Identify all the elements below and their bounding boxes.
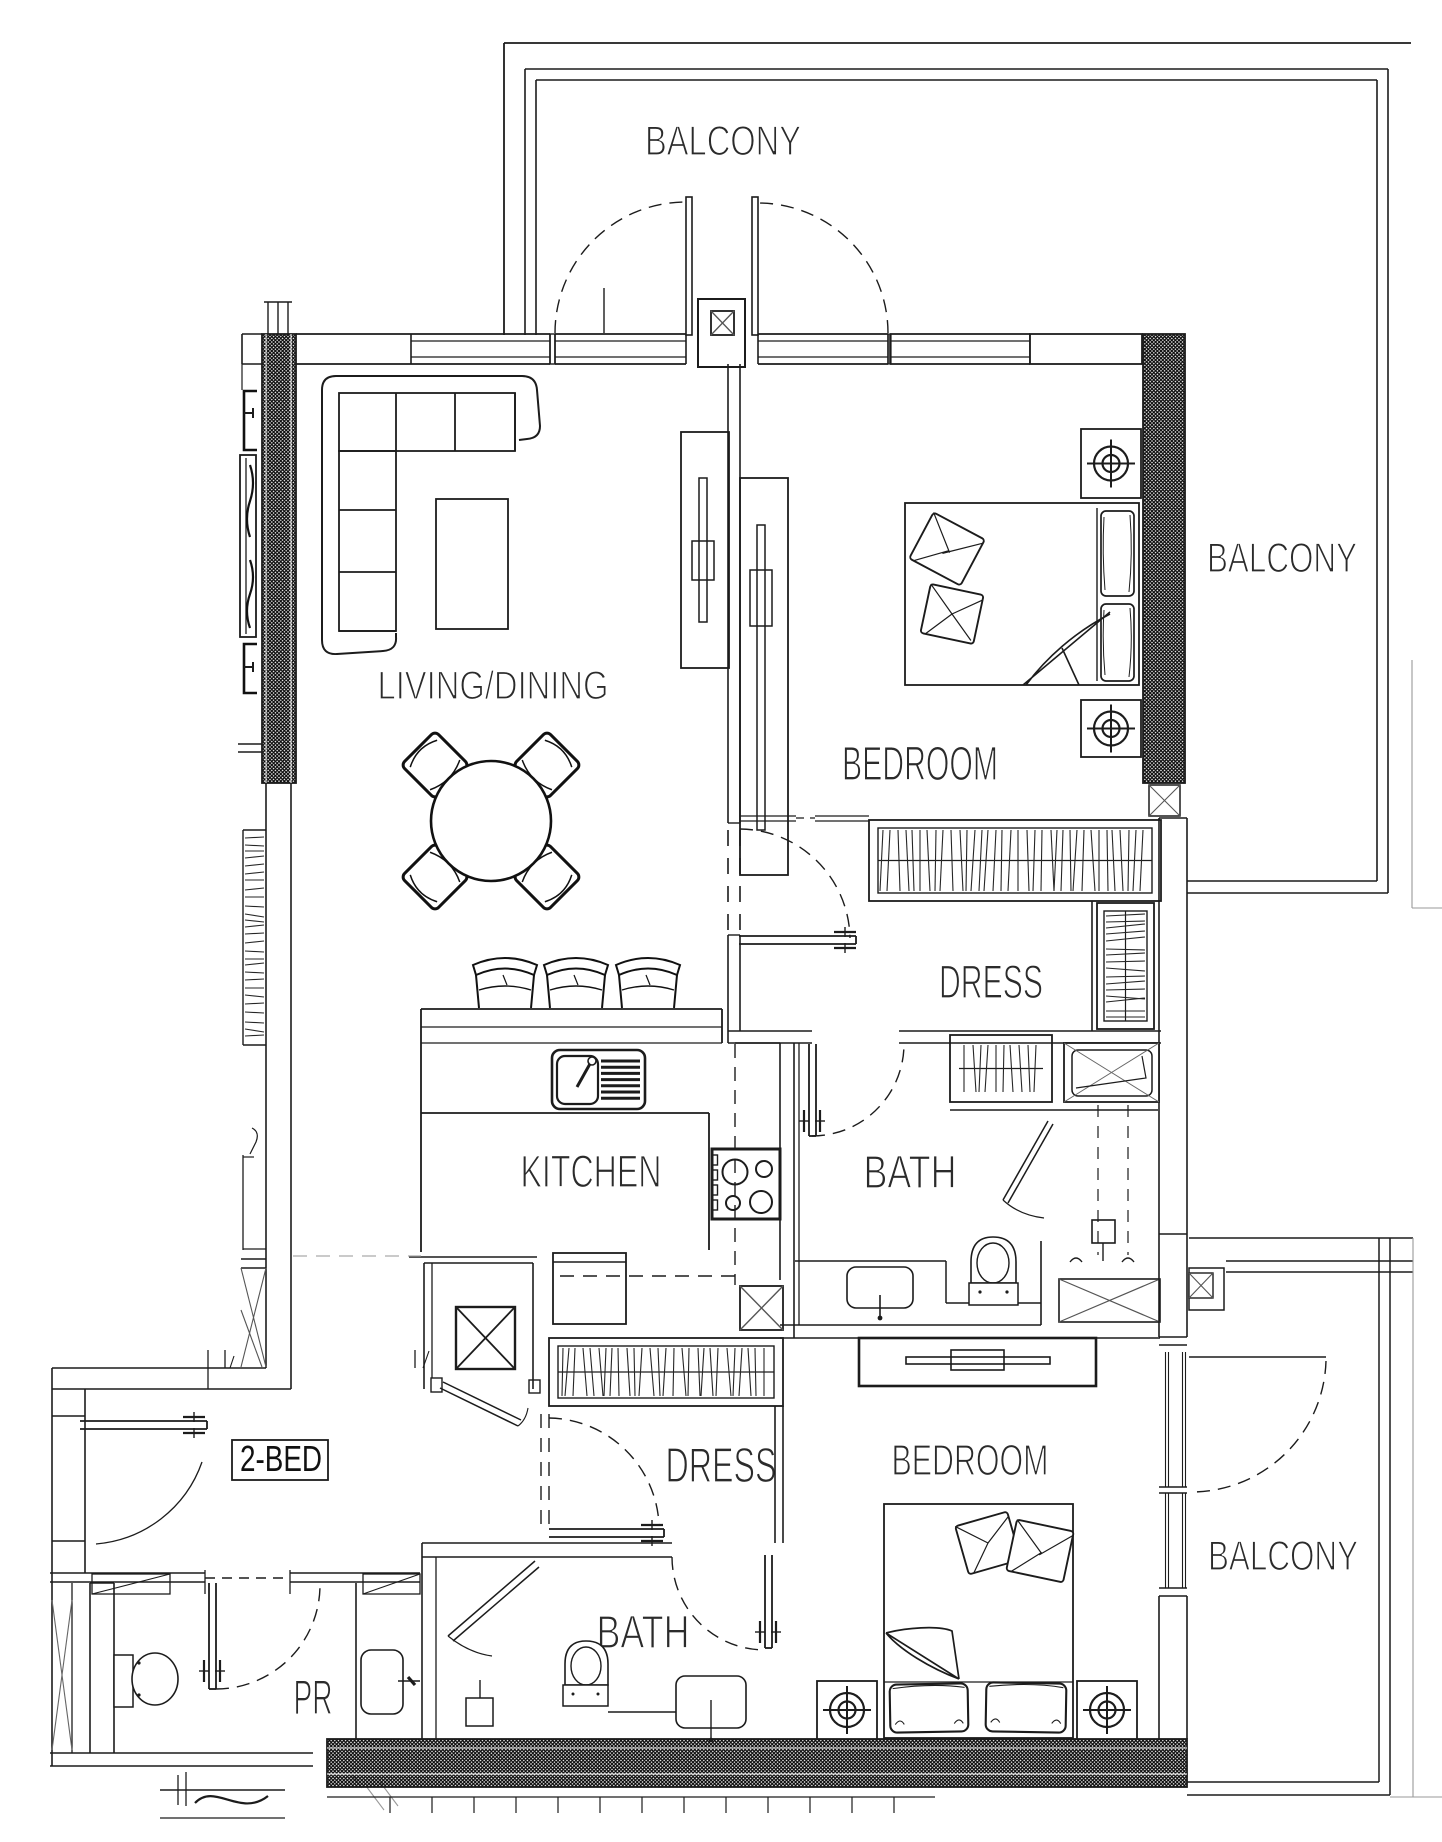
svg-text:BATH: BATH bbox=[597, 1606, 690, 1658]
svg-text:KITCHEN: KITCHEN bbox=[521, 1146, 662, 1197]
svg-text:BEDROOM: BEDROOM bbox=[892, 1436, 1049, 1485]
svg-text:2-BED: 2-BED bbox=[240, 1438, 322, 1479]
svg-text:BALCONY: BALCONY bbox=[1207, 534, 1357, 581]
svg-text:BATH: BATH bbox=[864, 1146, 957, 1198]
svg-text:LIVING/DINING: LIVING/DINING bbox=[378, 664, 609, 708]
svg-text:BALCONY: BALCONY bbox=[645, 117, 801, 164]
svg-text:BEDROOM: BEDROOM bbox=[842, 738, 998, 791]
svg-text:DRESS: DRESS bbox=[939, 955, 1043, 1008]
svg-text:PR: PR bbox=[294, 1671, 333, 1725]
svg-text:DRESS: DRESS bbox=[666, 1439, 777, 1493]
svg-text:BALCONY: BALCONY bbox=[1208, 1532, 1358, 1579]
